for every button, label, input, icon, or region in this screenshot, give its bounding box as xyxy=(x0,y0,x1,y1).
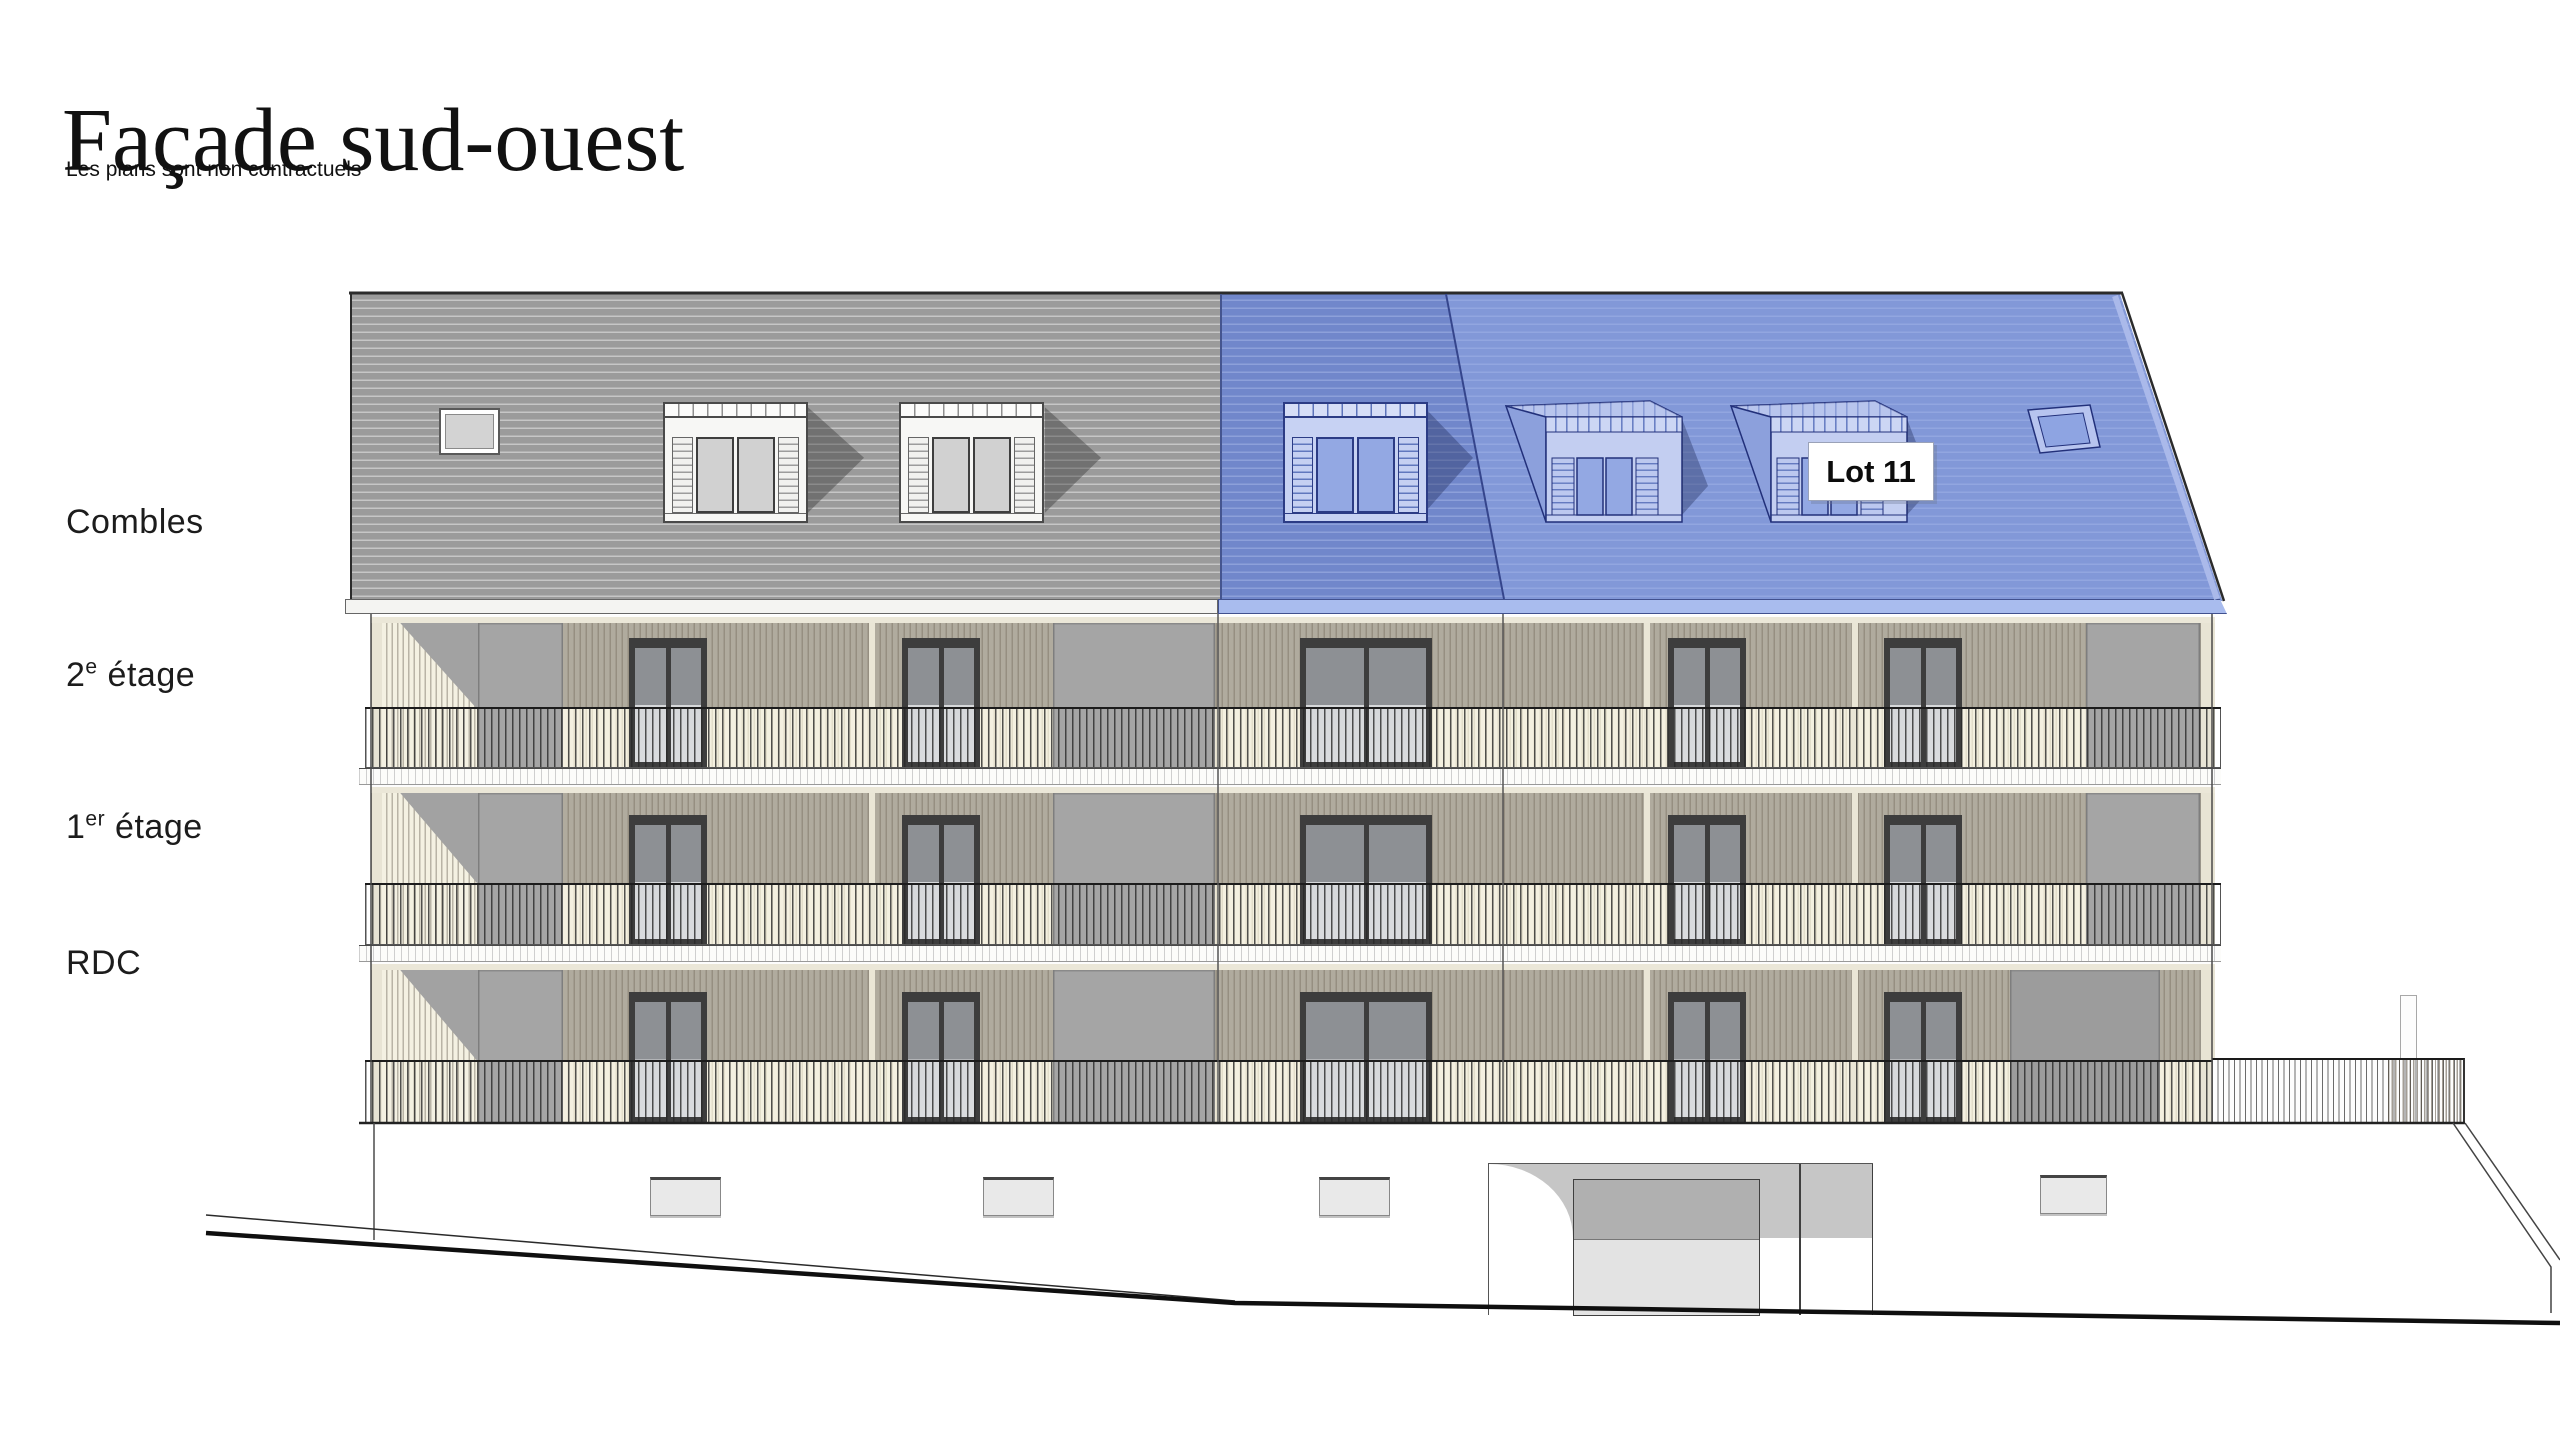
elevation-linework xyxy=(0,0,2560,1440)
elevation-page: Façade sud-ouest Les plans sont non cont… xyxy=(0,0,2560,1440)
